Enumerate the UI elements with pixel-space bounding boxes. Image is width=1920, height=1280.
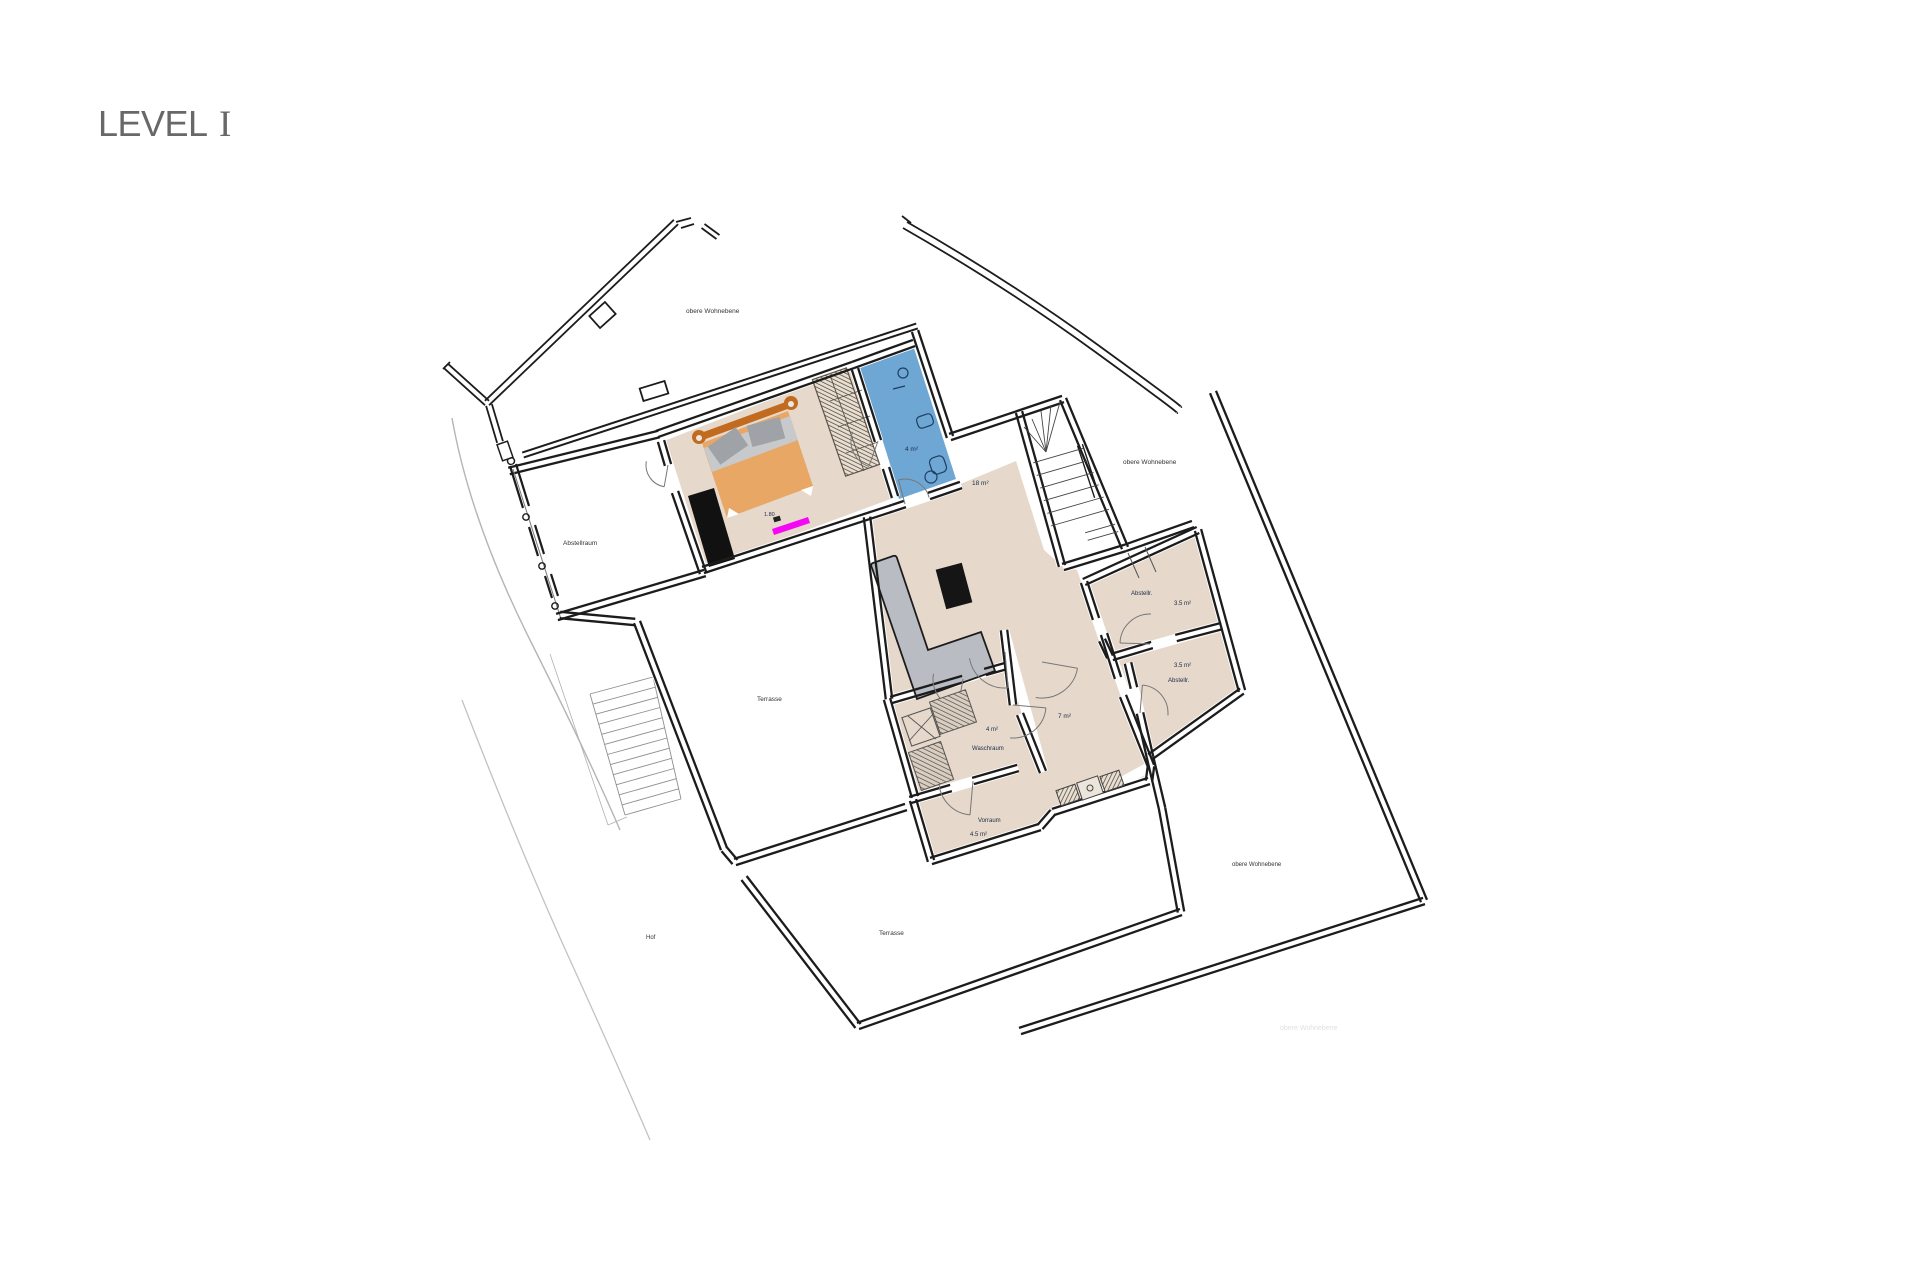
svg-text:Terrasse: Terrasse xyxy=(757,696,782,703)
svg-text:obere Wohnebene: obere Wohnebene xyxy=(1123,459,1177,466)
svg-text:Hof: Hof xyxy=(646,935,656,941)
svg-text:Abstellr.: Abstellr. xyxy=(1131,591,1153,597)
svg-text:4.5 m²: 4.5 m² xyxy=(970,832,987,838)
svg-text:1.80: 1.80 xyxy=(764,512,775,518)
svg-text:4 m²: 4 m² xyxy=(905,446,919,453)
svg-text:obere Wohnebene: obere Wohnebene xyxy=(1232,862,1282,868)
svg-text:4 m²: 4 m² xyxy=(986,727,998,733)
svg-text:obere Wohnebene: obere Wohnebene xyxy=(1280,1025,1338,1032)
svg-text:LEVEL: LEVEL xyxy=(98,103,208,144)
svg-text:I: I xyxy=(219,104,231,145)
svg-text:Waschraum: Waschraum xyxy=(972,746,1004,752)
svg-text:7 m²: 7 m² xyxy=(1058,713,1072,720)
svg-text:3.5 m²: 3.5 m² xyxy=(1174,601,1191,607)
svg-text:obere Wohnebene: obere Wohnebene xyxy=(686,308,740,315)
svg-text:Vorraum: Vorraum xyxy=(978,818,1001,824)
svg-text:Terrasse: Terrasse xyxy=(879,930,904,937)
svg-text:Abstellr.: Abstellr. xyxy=(1168,678,1190,684)
svg-text:3.5 m²: 3.5 m² xyxy=(1174,663,1191,669)
svg-text:18 m²: 18 m² xyxy=(972,480,989,487)
svg-text:Abstellraum: Abstellraum xyxy=(563,540,597,547)
